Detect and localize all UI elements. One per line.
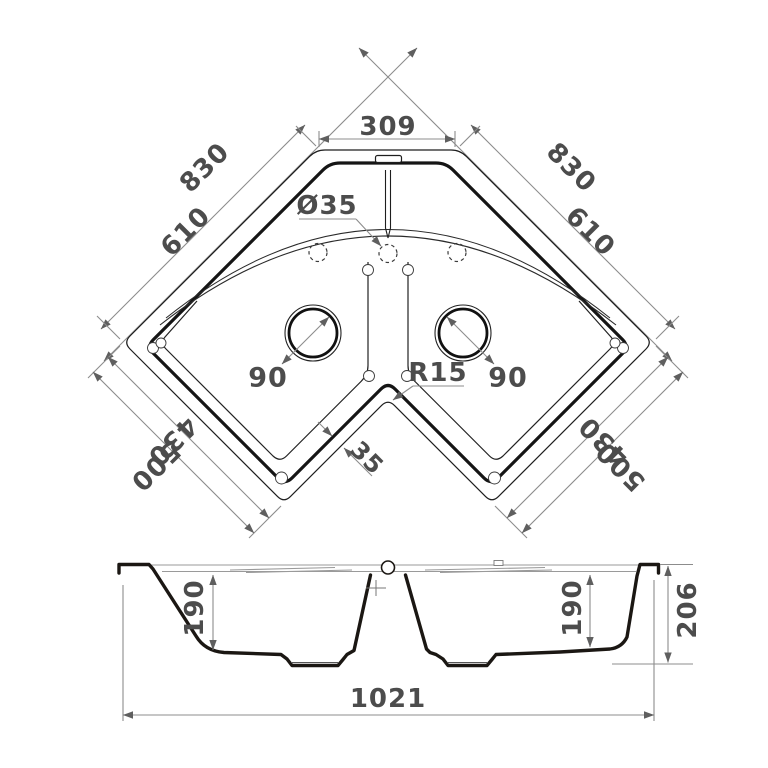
section-profile-right-bowl	[406, 565, 659, 666]
corner-bumps	[148, 265, 629, 485]
bowl-depth-left-label: 190	[180, 579, 210, 636]
rim-width-label: 35	[345, 436, 390, 481]
extension-line	[249, 506, 281, 538]
extension-line	[656, 316, 679, 339]
dim-line-830-left	[104, 48, 417, 361]
sink-technical-drawing-page: 309 830 830 610 610 Ø35 90 90 R15 35 430…	[0, 0, 768, 768]
faucet-hole-left	[309, 244, 327, 262]
faucet-hole-center	[379, 245, 397, 263]
leader-dia35	[356, 219, 381, 246]
drainer-groove	[230, 568, 335, 571]
extension-line	[656, 346, 688, 378]
dim-top-width-label: 309	[359, 112, 416, 142]
extension-line	[97, 316, 120, 339]
extension-line	[460, 126, 480, 146]
dim-830-left-label: 830	[174, 137, 236, 199]
drainer-groove	[425, 568, 545, 571]
corner-sink-drawing: 309 830 830 610 610 Ø35 90 90 R15 35 430…	[0, 0, 768, 768]
dim-610-right-label: 610	[559, 201, 621, 263]
section-profile-left-bowl	[119, 565, 371, 666]
extension-line	[296, 126, 316, 146]
overflow-knob	[494, 561, 503, 566]
dim-line-830-right	[359, 48, 672, 361]
bowl-depth-right-label: 190	[558, 579, 588, 636]
top-view: 309 830 830 610 610 Ø35 90 90 R15 35 430…	[88, 48, 688, 538]
overflow-opening	[376, 156, 402, 163]
overall-width-label: 1021	[350, 684, 426, 714]
faucet-hole-section	[382, 561, 395, 574]
sink-outer-silhouette	[127, 150, 650, 500]
sink-rim-outline	[150, 163, 626, 482]
dim-line-35-a	[318, 422, 332, 436]
faucet-hole-diameter-label: Ø35	[296, 191, 357, 221]
dim-610-left-label: 610	[155, 201, 217, 263]
dim-830-right-label: 830	[540, 137, 602, 199]
section-view: 190 190 206 1021	[119, 561, 703, 722]
deck-front-edge-inner	[166, 230, 610, 319]
extension-line	[88, 346, 120, 378]
overall-height-label: 206	[673, 581, 703, 638]
drain-left-diameter-label: 90	[248, 363, 288, 394]
drain-right-diameter-label: 90	[488, 363, 528, 394]
deck-front-edge	[160, 236, 616, 325]
corner-radius-label: R15	[408, 358, 467, 388]
divider-slot	[386, 170, 391, 238]
